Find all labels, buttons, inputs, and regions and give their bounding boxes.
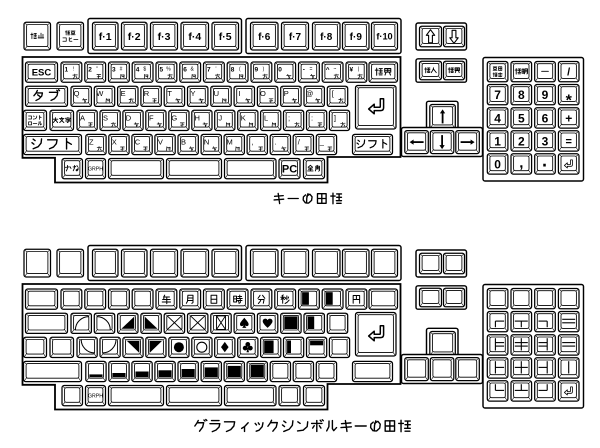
svg-text:f·6: f·6 — [258, 32, 271, 43]
svg-text:_: _ — [319, 137, 325, 146]
svg-text:": " — [96, 67, 98, 73]
svg-text:8: 8 — [518, 88, 525, 102]
svg-text:f·8: f·8 — [320, 32, 333, 43]
svg-text:=: = — [310, 67, 313, 73]
svg-text:^: ^ — [326, 65, 330, 73]
svg-text:·: · — [542, 155, 548, 175]
svg-text:R: R — [144, 89, 150, 98]
svg-text:f·2: f·2 — [128, 31, 141, 43]
svg-text:4: 4 — [136, 66, 140, 73]
svg-text:3: 3 — [112, 66, 116, 73]
svg-text:Y: Y — [190, 89, 195, 98]
svg-text:!: ! — [73, 67, 74, 73]
svg-text:GRPH: GRPH — [88, 167, 103, 173]
svg-text:1: 1 — [64, 66, 68, 73]
svg-text:2: 2 — [88, 66, 92, 73]
svg-text:@: @ — [306, 89, 314, 98]
svg-text:f·7: f·7 — [289, 32, 302, 43]
svg-text:0: 0 — [494, 157, 501, 171]
svg-text:6: 6 — [183, 66, 187, 73]
svg-text:A: A — [80, 113, 85, 122]
svg-text:f·1: f·1 — [99, 31, 112, 43]
svg-text:I: I — [239, 89, 241, 98]
svg-text:¥: ¥ — [349, 66, 353, 73]
svg-text:': ' — [216, 67, 217, 73]
svg-text:J: J — [218, 113, 222, 122]
svg-text:f·9: f·9 — [350, 32, 363, 43]
svg-text:U: U — [214, 89, 219, 98]
svg-text:2: 2 — [518, 134, 525, 148]
svg-text:L: L — [264, 113, 268, 122]
svg-text:E: E — [121, 89, 126, 98]
svg-text:F: F — [149, 113, 154, 122]
svg-text:K: K — [241, 113, 246, 122]
svg-text:7: 7 — [207, 66, 211, 73]
svg-text:S: S — [103, 113, 108, 122]
svg-text:PC: PC — [282, 164, 297, 176]
svg-text:7: 7 — [494, 88, 501, 102]
svg-text:9: 9 — [542, 88, 549, 102]
svg-text:C: C — [135, 137, 141, 146]
svg-text:$: $ — [143, 67, 146, 73]
svg-text:]: ] — [334, 113, 336, 122]
svg-text:/: / — [567, 67, 570, 79]
svg-text:%: % — [166, 67, 171, 73]
svg-text:O: O — [260, 89, 266, 98]
svg-text:0: 0 — [278, 66, 282, 73]
svg-text:ESC: ESC — [32, 68, 52, 79]
svg-text:GRPH: GRPH — [88, 394, 103, 400]
svg-text:;: ; — [288, 113, 290, 122]
svg-text:3: 3 — [542, 134, 549, 148]
svg-text:+: + — [565, 111, 572, 125]
svg-text:Z: Z — [89, 137, 94, 146]
svg-text:,: , — [252, 137, 254, 146]
svg-text:X: X — [112, 137, 117, 146]
svg-text:|: | — [358, 67, 359, 73]
svg-text:f·4: f·4 — [188, 31, 201, 43]
svg-text:*: * — [566, 92, 573, 109]
svg-text:H: H — [194, 113, 199, 122]
svg-text:f·5: f·5 — [219, 31, 232, 43]
svg-text:M: M — [226, 137, 232, 146]
svg-text:P: P — [284, 89, 289, 98]
svg-text:f·10: f·10 — [376, 32, 392, 42]
svg-text:5: 5 — [518, 111, 525, 125]
svg-text:~: ~ — [333, 67, 336, 73]
svg-text:.: . — [275, 137, 277, 146]
svg-text:#: # — [120, 67, 123, 73]
svg-text:Q: Q — [74, 89, 80, 98]
svg-text:,: , — [519, 154, 523, 171]
svg-text::: : — [311, 113, 313, 122]
svg-text:T: T — [167, 89, 172, 98]
svg-text:G: G — [171, 113, 177, 122]
svg-text:N: N — [204, 137, 209, 146]
svg-text:1: 1 — [494, 134, 501, 148]
svg-text:=: = — [565, 136, 571, 148]
svg-text:B: B — [181, 137, 186, 146]
svg-text:f·3: f·3 — [158, 31, 171, 43]
svg-text:5: 5 — [159, 66, 163, 73]
svg-text:8: 8 — [231, 66, 235, 73]
svg-text:4: 4 — [494, 111, 501, 125]
svg-text:-: - — [303, 66, 305, 73]
svg-text:W: W — [96, 89, 104, 98]
svg-text:6: 6 — [542, 111, 549, 125]
svg-text:9: 9 — [254, 66, 258, 73]
svg-text:D: D — [126, 113, 132, 122]
svg-text:V: V — [158, 137, 163, 146]
